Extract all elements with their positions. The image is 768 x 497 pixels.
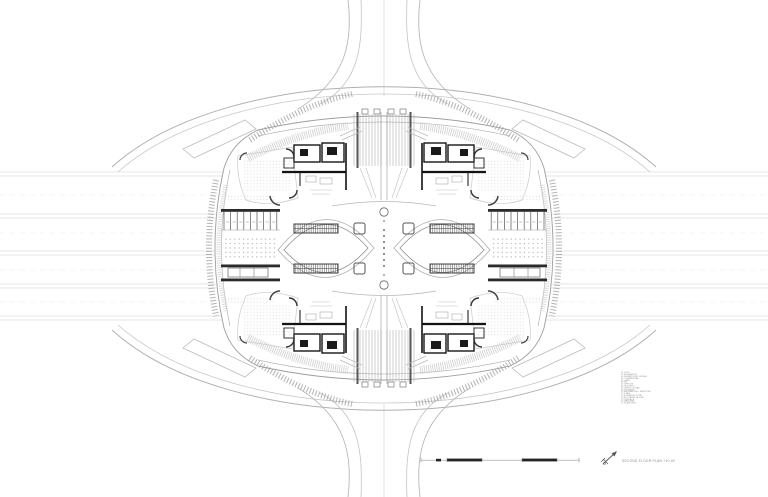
legend-item: 17 PLATFORM xyxy=(621,402,636,405)
drawing-title: SECOND FLOOR PLAN +10.00 xyxy=(622,459,675,463)
floor-plan-drawing: 01 VOID 02 ESCALATOR 03 DEPARTURE LOUNGE… xyxy=(0,0,768,497)
north-arrow-icon xyxy=(601,451,617,465)
floor-plan-sheet: 01 VOID 02 ESCALATOR 03 DEPARTURE LOUNGE… xyxy=(0,0,768,497)
legend: 01 VOID 02 ESCALATOR 03 DEPARTURE LOUNGE… xyxy=(621,372,651,404)
scale-bar xyxy=(421,458,579,463)
